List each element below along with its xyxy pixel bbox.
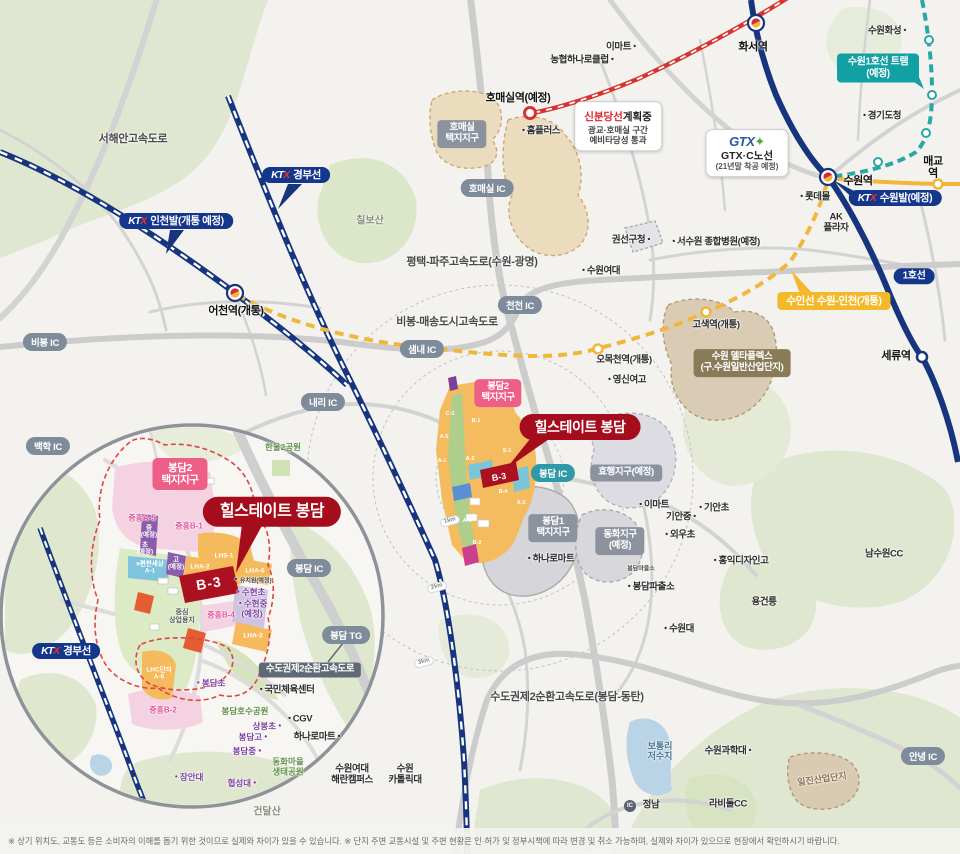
ktx-logo-icon: KTX <box>41 645 59 657</box>
poi-dot-icon: ● <box>175 774 178 780</box>
map-badge: 봉담2 택지지구 <box>474 379 521 407</box>
map-label: 3km <box>413 655 435 669</box>
poi-dot-icon: ● <box>665 532 668 538</box>
map-label: ●외우초 <box>663 531 695 542</box>
poi-dot-icon: ● <box>278 723 281 729</box>
poi-dot-icon: ● <box>608 377 611 383</box>
poi-dot-icon: ● <box>337 734 340 740</box>
map-label: LHA-2 <box>190 563 209 570</box>
map-label: B-3 <box>491 471 507 483</box>
gtx-logo: GTX✦ <box>716 134 779 150</box>
map-label: 일진산업단지 <box>797 771 848 788</box>
disclaimer-text: ※ 상기 위치도, 교통도 등은 소비자의 이해를 돕기 위한 것이므로 실제와… <box>0 828 960 854</box>
poi-dot-icon: ● <box>288 716 291 722</box>
ic-pill: 호매실 IC <box>461 179 514 197</box>
map-label: 수원화성● <box>868 27 908 38</box>
poi-dot-icon: ● <box>522 128 525 134</box>
map-label: ●기안초 <box>697 504 729 515</box>
poi-dot-icon: ● <box>903 28 906 34</box>
map-badge: 1호선 <box>894 268 935 284</box>
map-label: 건달산 <box>253 806 281 817</box>
map-label: ●국민체육센터 <box>258 686 315 697</box>
ic-pill: 천천 IC <box>498 296 542 314</box>
map-badge: 수원 델타플렉스 (구.수원일반산업단지) <box>694 349 791 377</box>
map-label: 라비돌CC <box>709 800 747 811</box>
map-label: LHA-3 <box>243 632 262 639</box>
map-label: 화서역 <box>738 41 767 53</box>
ktx-badge: KTX경부선 <box>32 643 100 659</box>
map-label: 고 (예정) <box>168 557 184 572</box>
poi-dot-icon: ● <box>528 556 531 562</box>
map-badge: 봉담2 택지지구 <box>152 458 207 490</box>
map-label: B-1 <box>472 418 481 424</box>
map-label: LHS-1 <box>215 552 234 559</box>
map-label: 중흥B-2 <box>149 707 177 716</box>
map-label: A-1 <box>438 458 447 464</box>
map-label: ●봉담파출소 <box>626 583 675 594</box>
map-badge: 수원1호선 트램(예정) <box>837 54 919 83</box>
poi-dot-icon: ● <box>235 577 238 583</box>
map-label: A-5 <box>440 434 449 440</box>
map-label: ●장안대 <box>173 773 204 783</box>
poi-dot-icon: ● <box>800 194 803 200</box>
map-label: B-4 <box>499 489 508 495</box>
ic-pill: 샘내 IC <box>400 340 444 358</box>
poi-dot-icon: ● <box>628 584 631 590</box>
map-label: 1km <box>439 514 461 528</box>
gtx-line-name: GTX·C노선 <box>716 150 779 163</box>
poi-dot-icon: ● <box>633 44 636 50</box>
map-label: 중흥A-5 <box>128 515 156 524</box>
poi-dot-icon: ● <box>258 748 261 754</box>
map-label: A-3 <box>517 500 526 506</box>
project-badge-inset: 힐스테이트 봉담 <box>203 497 341 527</box>
map-label: 한울2공원 <box>265 443 301 453</box>
map-label: 상봉초● <box>253 722 284 732</box>
map-label: 오목천역(개통) <box>596 356 652 367</box>
map-label: 중흥B-1 <box>175 523 203 532</box>
project-badge-main: 힐스테이트 봉담 <box>520 414 641 440</box>
map-label: 권선구청● <box>612 236 652 247</box>
gtx-line-note: (21년말 착공 예정) <box>716 162 779 172</box>
map-label: ●수원여대 <box>580 267 620 278</box>
map-label: 협성대● <box>228 779 259 789</box>
ktx-logo-icon: KTX <box>858 192 876 204</box>
poi-dot-icon: ● <box>264 734 267 740</box>
shinbundang-status: 계획중 <box>623 111 652 123</box>
ic-pill: 봉담 TG <box>322 626 370 644</box>
poi-dot-icon: ● <box>611 57 614 63</box>
map-badge: 동화지구 (예정) <box>595 527 644 555</box>
poi-dot-icon: ● <box>672 239 675 245</box>
map-label: 2km <box>426 580 448 594</box>
map-label: 농협하나로클럽● <box>550 56 615 67</box>
map-badge: 수인선 수원-인천(개통) <box>777 292 890 310</box>
ktx-badge: KTX경부선 <box>262 167 330 183</box>
map-label: e편한세상 A-1 <box>136 561 164 576</box>
shinbundang-note: 예비타당성 통과 <box>584 136 652 146</box>
map-badge: 효행지구(예정) <box>590 465 662 482</box>
poi-dot-icon: ● <box>197 680 200 686</box>
map-label: AK 플라자 <box>823 212 848 233</box>
map-label: 남수원CC <box>865 550 903 561</box>
map-label: ●영신여고 <box>606 376 646 387</box>
map-label: B-2 <box>473 540 482 546</box>
shinbundang-info-box: 신분당선계획중 광교·호매실 구간 예비타당성 통과 <box>574 101 662 151</box>
poi-dot-icon: ● <box>237 589 240 595</box>
map-label: ●봉담초 <box>195 679 226 689</box>
map-label: ●서수원 종합병원(예정) <box>670 238 760 249</box>
ktx-badge: KTX수원발(예정) <box>849 190 942 206</box>
poi-dot-icon: ● <box>647 237 650 243</box>
poi-dot-icon: ● <box>714 558 717 564</box>
map-label: ●홈플러스 <box>520 127 560 138</box>
map-label: LHC단지 A-6 <box>146 667 171 682</box>
map-label: A-2 <box>466 456 475 462</box>
ic-pill: 내리 IC <box>301 393 345 411</box>
map-label: S-1 <box>503 448 512 454</box>
map-labels-layer: 서해안고속도로칠보산평택-파주고속도로(수원-광명)비봉-매송도시고속도로수도권… <box>0 0 960 854</box>
map-label: 초 (예정) <box>137 542 153 557</box>
poi-dot-icon: ● <box>582 268 585 274</box>
ic-pill: 안녕 IC <box>901 747 945 765</box>
map-label: B-3 <box>195 574 223 593</box>
ic-pill: 봉담 IC <box>531 464 575 482</box>
map-label: ●수현초 <box>235 588 266 598</box>
map-label: 봉담고● <box>239 733 270 743</box>
jeongnam-ic-icon: IC <box>624 800 636 812</box>
poi-dot-icon: ● <box>239 600 242 606</box>
poi-dot-icon: ● <box>260 687 263 693</box>
map-label: 수원역 <box>843 175 872 187</box>
map-label: 고색역(개통) <box>692 321 739 332</box>
map-label: LHA-6 <box>245 567 264 574</box>
map-label: 중심 상업용지 <box>169 609 195 625</box>
poi-dot-icon: ● <box>639 502 642 508</box>
map-label: 보통리 저수지 <box>648 741 673 761</box>
poi-dot-icon: ● <box>693 514 696 520</box>
shinbundang-title: 신분당선 <box>584 111 623 123</box>
shinbundang-section: 광교·호매실 구간 <box>584 125 652 135</box>
map-label: 평택-파주고속도로(수원-광명) <box>406 256 537 268</box>
map-label: 수원과학대● <box>705 747 754 758</box>
map-label: 수도권제2순환고속도로(봉담-동탄) <box>490 691 643 703</box>
map-label: 세류역 <box>881 350 910 362</box>
map-label: ●경기도청 <box>861 112 901 123</box>
poi-dot-icon: ● <box>863 113 866 119</box>
map-label: ●하나로마트 <box>526 555 575 566</box>
ic-pill: 봉담 IC <box>287 559 331 577</box>
map-label: ●수현중 (예정) <box>237 599 268 618</box>
map-label: ●이마트 <box>637 501 669 512</box>
map-label: ●유치원(예정) <box>233 577 272 586</box>
ktx-badge: KTX인천발(개통 예정) <box>119 213 233 229</box>
map-label: 봉담중● <box>233 747 264 757</box>
gtx-info-box: GTX✦ GTX·C노선 (21년말 착공 예정) <box>706 129 789 177</box>
location-map: 서해안고속도로칠보산평택-파주고속도로(수원-광명)비봉-매송도시고속도로수도권… <box>0 0 960 854</box>
poi-dot-icon: ● <box>664 626 667 632</box>
map-label: ●수원대 <box>662 625 694 636</box>
map-label: 어천역(개통) <box>208 305 263 317</box>
map-label: ●홍익디자인고 <box>712 557 769 568</box>
map-badge: 봉담1 택지지구 <box>528 514 577 542</box>
ktx-logo-icon: KTX <box>128 215 146 227</box>
map-label: 봉담마을소 <box>627 567 655 574</box>
map-label: 이마트● <box>606 43 638 54</box>
map-label: 용건릉 <box>751 598 776 609</box>
ic-pill: 백학 IC <box>26 437 70 455</box>
ktx-logo-icon: KTX <box>271 169 289 181</box>
map-label: 수원 카톨릭대 <box>388 764 421 785</box>
map-label: 동화마을 생태공원 <box>272 757 303 776</box>
map-label: 매교역 <box>920 156 947 181</box>
map-badge: 수도권제2순환고속도로 <box>259 663 361 678</box>
map-label: 호매실역(예정) <box>486 92 551 104</box>
map-label: ●롯데몰 <box>798 193 830 204</box>
map-label: 중흥B-4 <box>207 612 235 621</box>
map-label: 정남 <box>643 801 660 812</box>
map-label: A-4 <box>463 518 472 524</box>
map-label: 수원여대 해란캠퍼스 <box>331 764 373 785</box>
map-label: 봉담호수공원 <box>222 707 269 717</box>
map-label: 하나로마트● <box>294 733 343 744</box>
map-label: C-3 <box>446 411 455 417</box>
map-label: 칠보산 <box>356 215 384 226</box>
map-label: 중 (예정) <box>141 525 157 540</box>
poi-dot-icon: ● <box>748 748 751 754</box>
poi-dot-icon: ● <box>699 505 702 511</box>
map-label: ●CGV <box>286 715 312 726</box>
poi-dot-icon: ● <box>253 780 256 786</box>
map-badge: 호매실 택지지구 <box>437 120 486 148</box>
map-label: 비봉-매송도시고속도로 <box>396 316 498 328</box>
map-label: 기안중● <box>666 513 698 524</box>
map-label: 서해안고속도로 <box>99 133 168 145</box>
ic-pill: 비봉 IC <box>23 333 67 351</box>
